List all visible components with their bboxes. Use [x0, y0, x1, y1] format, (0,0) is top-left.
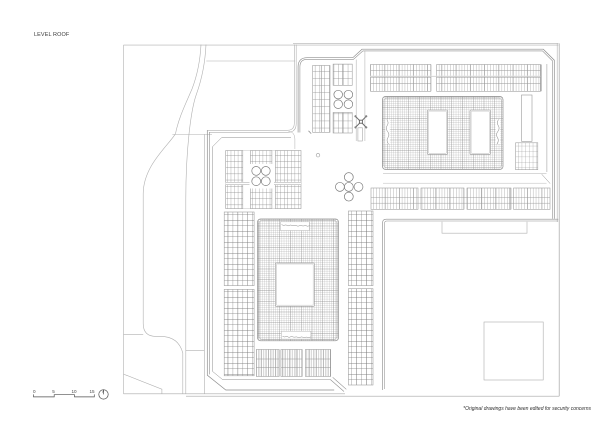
svg-text:*Original drawings have been e: *Original drawings have been edited for … [463, 406, 591, 412]
svg-text:10: 10 [71, 389, 77, 394]
svg-text:5: 5 [52, 389, 55, 394]
svg-text:15: 15 [89, 389, 95, 394]
svg-text:LEVEL ROOF: LEVEL ROOF [34, 32, 70, 38]
svg-text:0: 0 [33, 389, 36, 394]
